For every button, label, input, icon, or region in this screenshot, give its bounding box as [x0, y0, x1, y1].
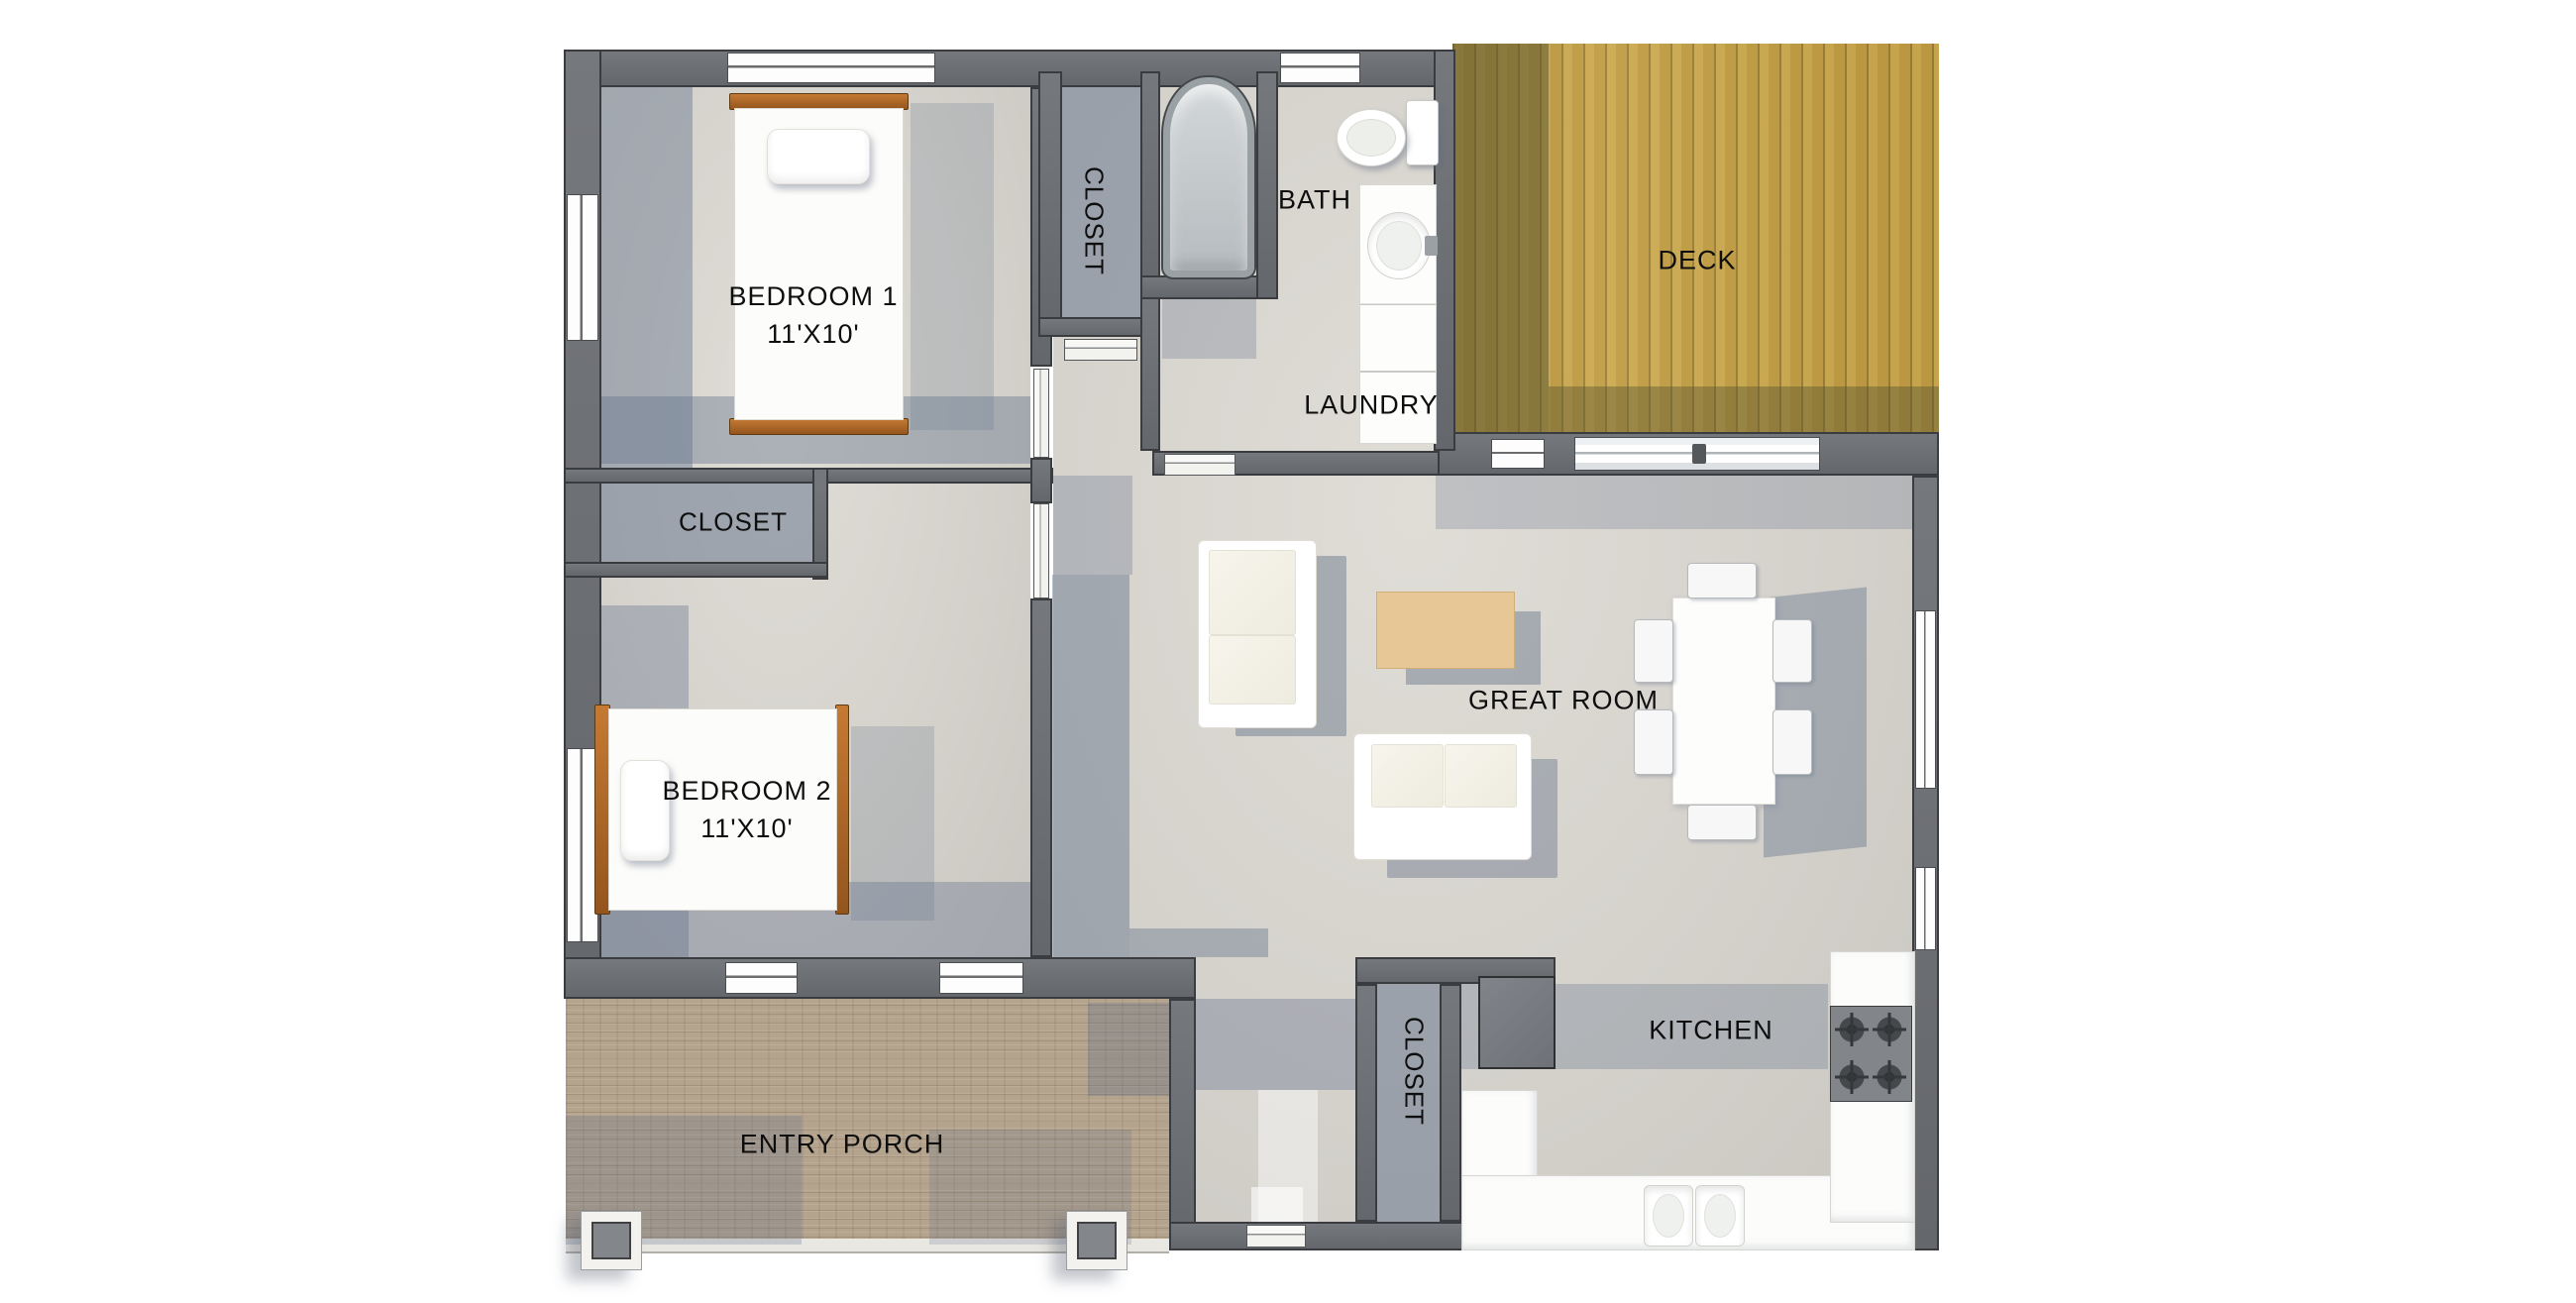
floor-shadow [1452, 44, 1549, 432]
bath-faucet [1425, 236, 1438, 256]
door-symbol [1164, 454, 1235, 476]
floor-light [1258, 1090, 1318, 1222]
room-label-closet-left: CLOSET [679, 507, 788, 538]
room-label-great-room: GREAT ROOM [1468, 686, 1659, 716]
wall-segment [564, 562, 828, 578]
stove-symbol [1830, 1006, 1912, 1102]
room-label-bedroom1: BEDROOM 1 11'X10' [728, 277, 898, 353]
porch-post [1066, 1211, 1127, 1270]
sliding-glass-door-symbol [1574, 437, 1820, 471]
wall-segment [1038, 71, 1062, 337]
room-label-bath: BATH [1278, 185, 1351, 216]
floor-shadow [1088, 1003, 1169, 1096]
floor-shadow [1129, 928, 1268, 957]
wall-segment [1140, 297, 1160, 451]
window-symbol [939, 962, 1023, 994]
bed1-pillow [767, 129, 870, 184]
sofa-vertical-symbol [1198, 540, 1317, 728]
porch-post-core [1077, 1222, 1117, 1259]
bed2-footboard [835, 705, 849, 915]
wall-segment [1355, 984, 1377, 1222]
door-symbol [1033, 369, 1049, 458]
wall-segment [1440, 984, 1461, 1222]
door-symbol [1246, 1225, 1306, 1248]
floor-shadow [1549, 386, 1939, 432]
bedroom1-name: BEDROOM 1 [728, 277, 898, 315]
wall-segment [1140, 71, 1160, 299]
wall-segment [1030, 598, 1052, 957]
window-symbol [1915, 610, 1936, 789]
dining-chair [1634, 709, 1673, 775]
window-symbol [725, 962, 798, 994]
wall-segment [564, 957, 1196, 999]
window-symbol [1915, 867, 1936, 950]
window-symbol [1491, 439, 1545, 469]
room-label-laundry: LAUNDRY [1304, 390, 1439, 421]
wall-segment [1912, 476, 1939, 1250]
bedroom1-size: 11'X10' [728, 315, 898, 353]
window-symbol [567, 194, 598, 341]
floor-shadow [911, 103, 994, 430]
wall-segment [564, 468, 1053, 484]
dining-table-symbol [1672, 597, 1775, 805]
bedroom2-name: BEDROOM 2 [662, 772, 831, 810]
sofa-horizontal-symbol [1353, 733, 1532, 860]
floor-shadow [1196, 999, 1355, 1090]
bath-sink-symbol [1367, 212, 1431, 279]
room-label-entry-porch: ENTRY PORCH [740, 1130, 945, 1160]
dining-chair [1634, 619, 1673, 683]
porch-post-core [591, 1222, 631, 1259]
wall-segment [1169, 999, 1196, 1250]
bedroom2-size: 11'X10' [662, 810, 831, 847]
wall-segment [1030, 458, 1052, 503]
floor-shadow [1436, 476, 1912, 529]
window-symbol [1280, 53, 1360, 83]
bed1-footboard [729, 418, 909, 435]
bed1-symbol [729, 93, 909, 435]
window-symbol [727, 53, 935, 83]
bathtub-symbol [1163, 77, 1254, 277]
coffee-table-symbol [1376, 592, 1515, 669]
room-label-deck: DECK [1658, 246, 1736, 276]
porch-post [581, 1211, 642, 1270]
kitchen-sink-basin [1644, 1185, 1693, 1247]
kitchen-sink-basin [1695, 1185, 1745, 1247]
room-label-closet-bottom: CLOSET [1399, 1017, 1430, 1126]
refrigerator-symbol [1478, 976, 1556, 1069]
wall-segment [1038, 317, 1152, 337]
door-symbol [1033, 503, 1049, 598]
floor-shadow [851, 726, 934, 921]
dining-chair [1687, 805, 1757, 840]
floor-shadow [1053, 476, 1132, 575]
room-label-bedroom2: BEDROOM 2 11'X10' [662, 772, 831, 847]
wall-segment [1256, 71, 1278, 299]
room-label-closet-top: CLOSET [1079, 166, 1110, 275]
floor-shadow [1162, 299, 1256, 359]
dining-chair [1772, 619, 1812, 683]
floor-shadow [1052, 575, 1129, 957]
dining-chair [1687, 563, 1757, 598]
door-symbol [1064, 339, 1137, 361]
toilet-symbol [1337, 109, 1406, 166]
floor-plan-page: BEDROOM 1 11'X10' BEDROOM 2 11'X10' CLOS… [0, 0, 2576, 1303]
room-label-kitchen: KITCHEN [1649, 1016, 1773, 1046]
dining-chair [1772, 709, 1812, 775]
toilet-tank [1406, 100, 1439, 165]
